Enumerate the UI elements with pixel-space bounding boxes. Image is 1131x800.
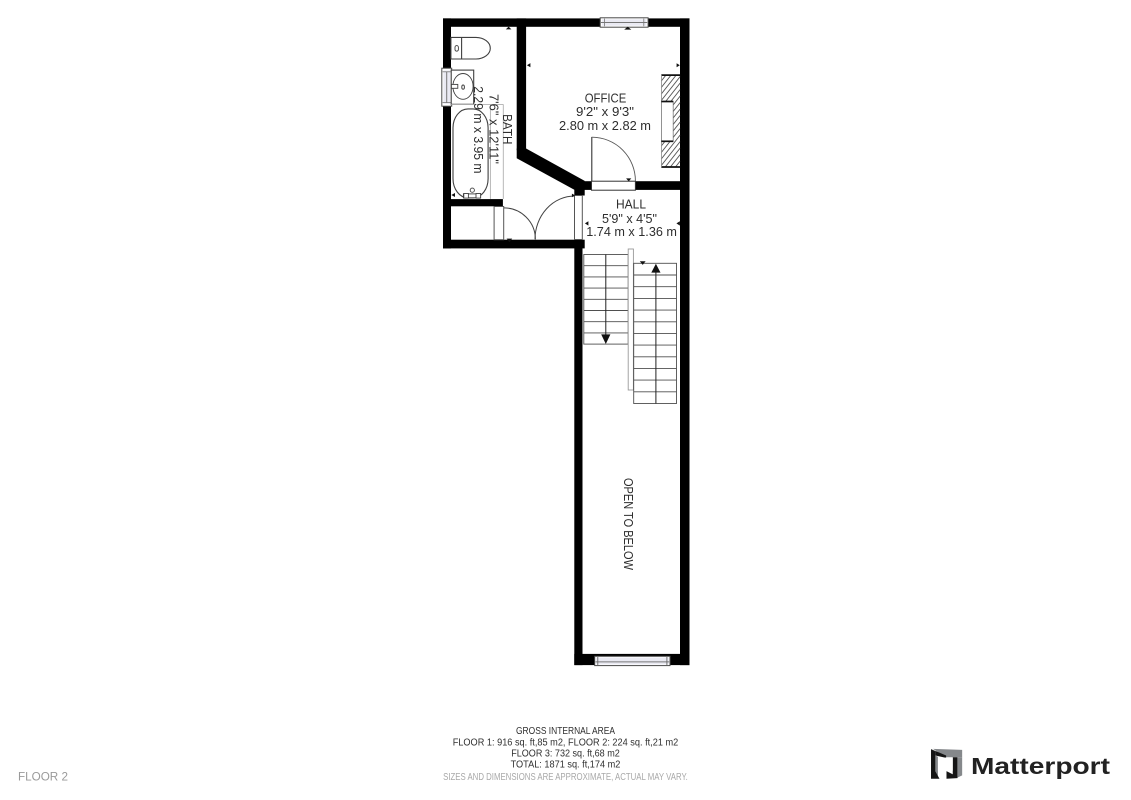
svg-text:Matterport: Matterport bbox=[971, 753, 1110, 779]
svg-text:OPEN TO BELOW: OPEN TO BELOW bbox=[621, 478, 636, 571]
svg-text:HALL: HALL bbox=[616, 197, 646, 212]
svg-text:2.80 m x 2.82 m: 2.80 m x 2.82 m bbox=[559, 118, 651, 133]
svg-text:1.74 m x 1.36 m: 1.74 m x 1.36 m bbox=[586, 224, 677, 239]
svg-text:FLOOR 2: FLOOR 2 bbox=[18, 772, 68, 784]
svg-text:SIZES AND DIMENSIONS ARE APPRO: SIZES AND DIMENSIONS ARE APPROXIMATE, AC… bbox=[443, 772, 688, 783]
svg-text:7'6" x 12'11": 7'6" x 12'11" bbox=[486, 94, 501, 164]
svg-text:2.29 m x 3.95 m: 2.29 m x 3.95 m bbox=[471, 86, 486, 173]
svg-text:TOTAL: 1871 sq. ft,174 m2: TOTAL: 1871 sq. ft,174 m2 bbox=[511, 760, 621, 771]
svg-text:FLOOR 1: 916 sq. ft,85 m2, FLO: FLOOR 1: 916 sq. ft,85 m2, FLOOR 2: 224 … bbox=[453, 738, 679, 749]
svg-text:FLOOR 3: 732 sq. ft,68 m2: FLOOR 3: 732 sq. ft,68 m2 bbox=[511, 749, 620, 760]
svg-text:GROSS INTERNAL AREA: GROSS INTERNAL AREA bbox=[516, 726, 615, 737]
